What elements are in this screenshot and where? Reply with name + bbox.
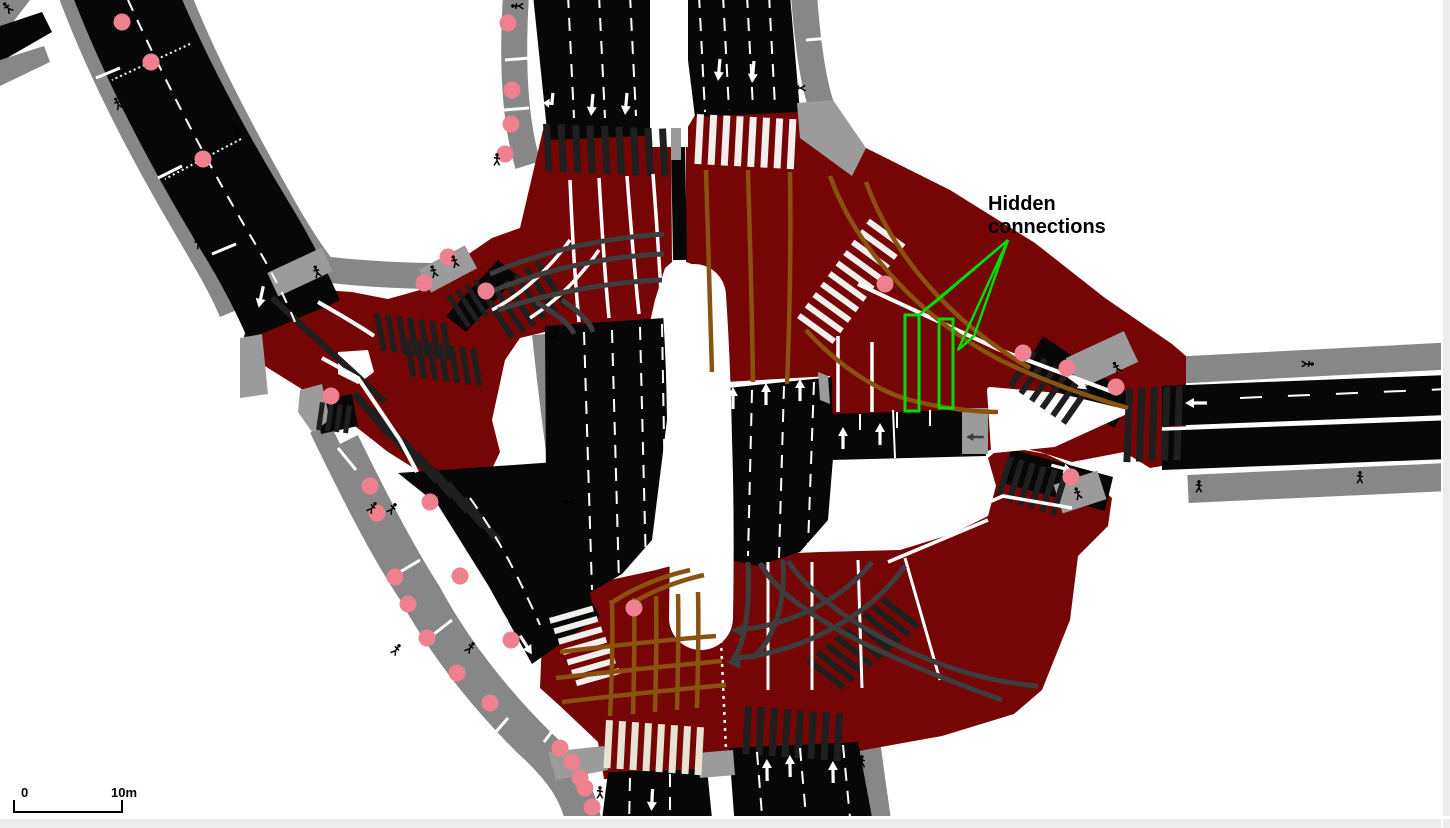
geometry-point[interactable] <box>387 569 404 586</box>
geometry-point[interactable] <box>1015 345 1032 362</box>
edge-north-right <box>680 0 800 117</box>
scrollbar-divider <box>1441 0 1443 828</box>
geometry-point[interactable] <box>400 596 417 613</box>
geometry-point[interactable] <box>114 14 131 31</box>
geometry-point[interactable] <box>195 151 212 168</box>
geometry-point[interactable] <box>419 630 436 647</box>
annotation-label-line2: connections <box>988 216 1106 238</box>
island-north-median <box>650 0 688 147</box>
geometry-point[interactable] <box>1108 379 1125 396</box>
geometry-point[interactable] <box>449 665 466 682</box>
map-canvas[interactable]: Hidden connections 0 10m <box>0 0 1450 828</box>
geometry-point[interactable] <box>577 780 594 797</box>
geometry-point[interactable] <box>503 116 520 133</box>
geometry-point[interactable] <box>416 275 433 292</box>
scale-end-label: 10m <box>111 785 137 800</box>
island-central-oval <box>694 296 702 618</box>
geometry-point[interactable] <box>626 600 643 617</box>
geometry-point[interactable] <box>1059 360 1076 377</box>
edge-north-left <box>533 0 665 140</box>
scale-start-label: 0 <box>21 785 28 800</box>
geometry-point[interactable] <box>503 632 520 649</box>
geometry-point[interactable] <box>877 276 894 293</box>
horizontal-scrollbar[interactable] <box>0 819 1450 828</box>
geometry-point[interactable] <box>323 388 340 405</box>
annotation-label-line1: Hidden <box>988 193 1056 215</box>
geometry-point[interactable] <box>362 478 379 495</box>
statusbar-divider <box>0 816 1450 819</box>
geometry-point[interactable] <box>552 740 569 757</box>
geometry-point[interactable] <box>564 754 581 771</box>
geometry-point[interactable] <box>584 799 601 816</box>
geometry-point[interactable] <box>422 494 439 511</box>
geometry-point[interactable] <box>143 54 160 71</box>
geometry-point[interactable] <box>1063 469 1080 486</box>
geometry-point[interactable] <box>497 146 514 163</box>
geometry-point[interactable] <box>504 82 521 99</box>
geometry-point[interactable] <box>500 15 517 32</box>
netedit-canvas-window: Hidden connections 0 10m <box>0 0 1450 828</box>
geometry-point[interactable] <box>452 568 469 585</box>
geometry-point[interactable] <box>482 695 499 712</box>
geometry-point[interactable] <box>478 283 495 300</box>
vertical-scrollbar[interactable] <box>1443 0 1450 828</box>
